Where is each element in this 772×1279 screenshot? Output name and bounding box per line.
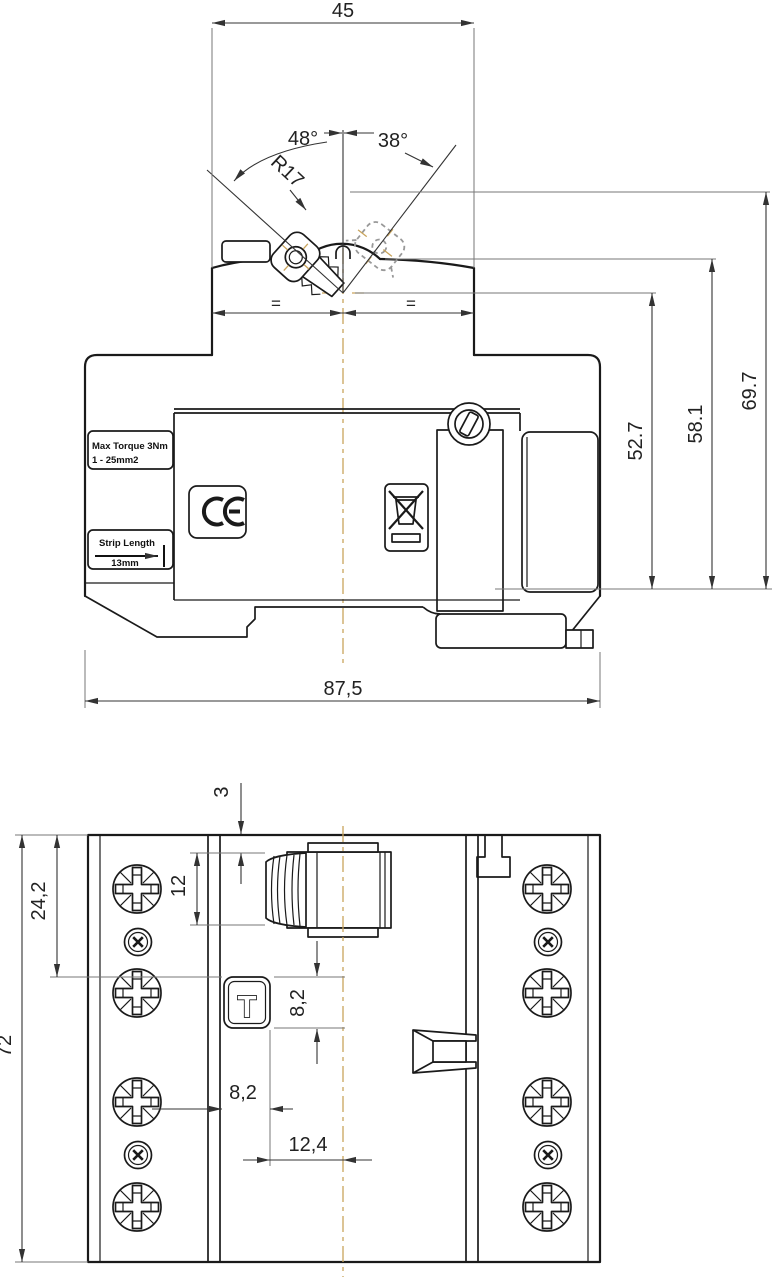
pozidriv-screw-icon: [523, 1183, 571, 1231]
dim-toggle-inset: 3: [211, 783, 241, 884]
dim-lever-radius-text: R17: [266, 151, 308, 192]
pozidriv-screw-icon: [113, 865, 161, 913]
pozidriv-screw-icon: [523, 969, 571, 1017]
toggle-lever-ghost: [342, 211, 416, 283]
dim-test-center: 12,4: [243, 1134, 372, 1160]
test-button-label: T: [238, 989, 257, 1024]
dim-depth-text: 72: [0, 1035, 16, 1057]
lever-axis-line: [207, 170, 343, 293]
strip-length-label: Strip Length 13mm: [88, 530, 173, 569]
din-clip-end: [566, 630, 593, 648]
dim-toggle-length: 12: [168, 853, 265, 925]
dim-lever-radius: R17: [266, 151, 308, 210]
pozidriv-screw-icon: [113, 1183, 161, 1231]
dim-height-upper-text: 58.1: [685, 405, 707, 444]
dim-total-width: 87,5: [85, 650, 600, 708]
dim-test-center-text: 12,4: [289, 1134, 328, 1156]
dim-height-total-text: 69.7: [739, 372, 761, 411]
pozidriv-screw-icon: [113, 1078, 161, 1126]
strip-label-line1: Strip Length: [99, 538, 155, 549]
foot-left-profile: [85, 596, 423, 637]
din-clip: [436, 614, 566, 648]
top-view: T 3 12: [0, 783, 600, 1277]
dim-test-offset: 8,2: [152, 1030, 293, 1166]
dim-height-pivot-text: 52.7: [625, 422, 647, 461]
rcd-dimension-drawing: Max Torque 3Nm 1 - 25mm2 CE Strip Length…: [0, 0, 772, 1279]
dim-heights: 52.7 58.1 69.7: [350, 192, 772, 589]
torque-label: Max Torque 3Nm 1 - 25mm2: [88, 431, 173, 469]
dim-test-offset-text: 8,2: [229, 1082, 257, 1104]
dim-test-height-text: 8,2: [287, 989, 309, 1017]
dim-module-width-text: 45: [332, 0, 354, 22]
dim-toggle-inset-text: 3: [211, 786, 233, 797]
strip-label-line2: 13mm: [111, 558, 138, 569]
right-side-panel: [522, 432, 598, 592]
toggle-handle-top: [266, 843, 391, 937]
pozidriv-screw-icon: [113, 969, 161, 1017]
panel-recess: [437, 430, 503, 611]
technical-drawing-page: Max Torque 3Nm 1 - 25mm2 CE Strip Length…: [0, 0, 772, 1279]
pozidriv-screw-icon: [523, 1078, 571, 1126]
terminal-block-side: [222, 241, 270, 262]
dim-total-width-text: 87,5: [324, 678, 363, 700]
rail-slider-clip: [413, 1030, 476, 1073]
panel-screw-icon: [448, 403, 490, 445]
phillips-screw-icon: [535, 1142, 562, 1169]
torque-label-line2: 1 - 25mm2: [92, 455, 138, 466]
test-button: T: [224, 977, 270, 1028]
ce-mark-icon: CE: [189, 486, 246, 538]
dim-row-offset-text: 24,2: [28, 882, 50, 921]
dim-equal-left-text: =: [271, 294, 281, 313]
weee-icon: [385, 484, 428, 551]
phillips-screw-icon: [125, 1142, 152, 1169]
dim-toggle-length-text: 12: [168, 875, 190, 897]
dim-angle-right-text: 38°: [378, 130, 408, 152]
phillips-screw-icon: [535, 929, 562, 956]
terminal-screws-left: [113, 865, 161, 1231]
dim-angle-left-text: 48°: [288, 128, 318, 150]
raised-section-top-right: [380, 259, 474, 268]
top-right-tab: [477, 835, 510, 877]
terminal-screws-right: [523, 865, 571, 1231]
torque-label-line1: Max Torque 3Nm: [92, 441, 168, 452]
front-view: Max Torque 3Nm 1 - 25mm2 CE Strip Length…: [85, 0, 772, 708]
pozidriv-screw-icon: [523, 865, 571, 913]
ghost-axis-line: [343, 145, 456, 293]
phillips-screw-icon: [125, 929, 152, 956]
body-right-edge: [474, 355, 600, 596]
dim-test-height: 8,2: [274, 941, 345, 1064]
dim-equal-right-text: =: [406, 294, 416, 313]
